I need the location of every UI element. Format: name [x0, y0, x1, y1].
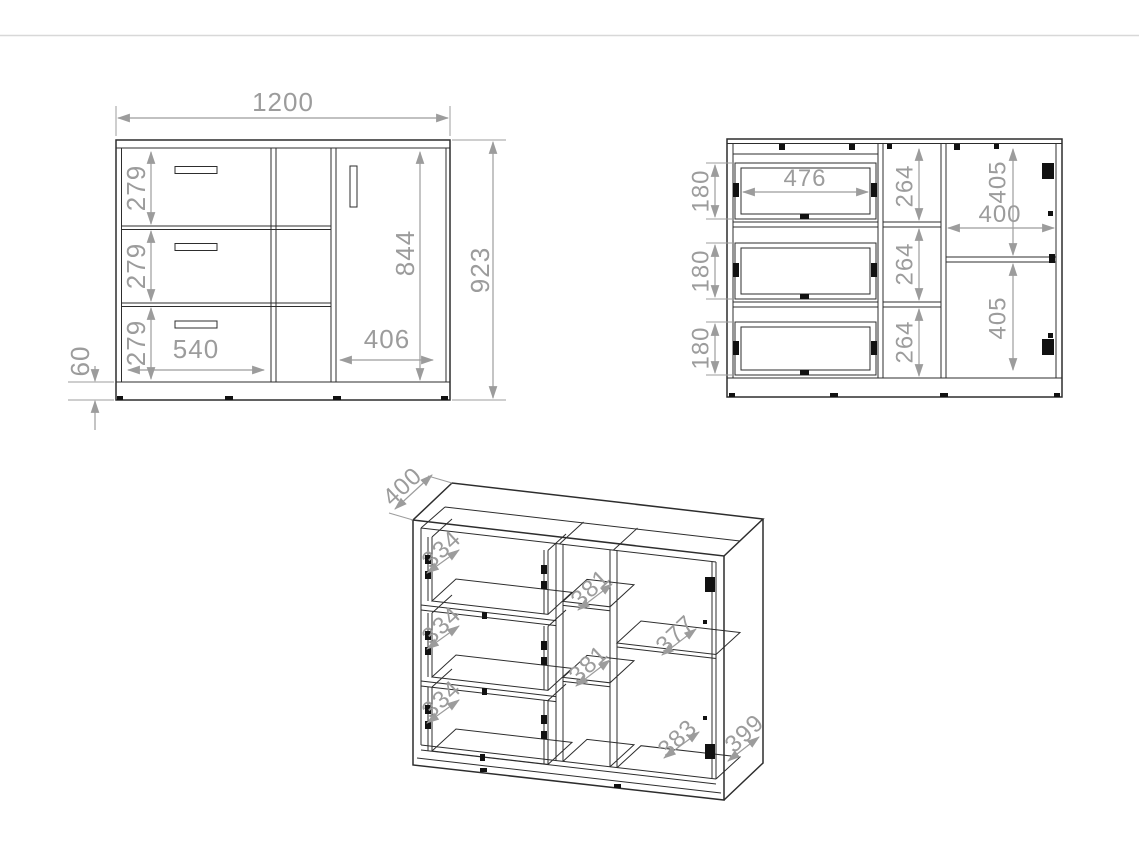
- dim-label-drawer-depth-3: 334: [417, 675, 467, 724]
- drawer-handle: [175, 244, 217, 251]
- door-handle: [350, 166, 357, 207]
- dim-label-top-depth: 400: [378, 462, 428, 511]
- cam-lock-marks: [779, 144, 999, 150]
- drawer-handle: [175, 321, 217, 328]
- dim-label-right-shelf-height-1: 405: [984, 160, 1011, 203]
- dim-label-overall-width: 1200: [252, 87, 314, 117]
- dim-label-shelf-height-3: 264: [891, 320, 918, 363]
- dim-label-bottom-depth: 383: [653, 714, 703, 763]
- dim-label-shelf-height-2: 264: [891, 242, 918, 285]
- dim-label-box-height-3: 180: [687, 326, 714, 369]
- drawer-division-lines: [122, 226, 332, 307]
- dim-label-box-height-2: 180: [687, 249, 714, 292]
- iso-cabinet-outline: [413, 483, 763, 800]
- dim-label-plinth-height: 60: [65, 346, 95, 377]
- dim-label-door-width: 406: [364, 324, 410, 354]
- drawer-box: [733, 243, 877, 299]
- dim-label-overall-height: 923: [465, 247, 495, 293]
- front-view: 1200 923 844 279 279 279 540 406: [65, 87, 506, 430]
- drawer-handle: [175, 167, 217, 174]
- dim-label-right-shelf-height-2: 405: [984, 296, 1011, 339]
- open-front-view: 180 180 180 476 264 264 264 400 405 405: [687, 139, 1062, 397]
- dim-label-drawer-height-3: 279: [121, 320, 151, 366]
- front-dimensions: 1200 923 844 279 279 279 540 406: [65, 87, 506, 430]
- dimension-drawing: 1200 923 844 279 279 279 540 406: [0, 0, 1139, 854]
- dim-label-drawer-inner-width: 476: [783, 165, 826, 192]
- dim-label-middle-shelf-depth-1: 381: [566, 564, 616, 613]
- furniture-dimension-sheet: 1200 923 844 279 279 279 540 406: [0, 0, 1139, 854]
- drawer-box: [733, 322, 877, 375]
- dim-label-drawer-depth-2: 334: [417, 601, 467, 650]
- iso-dimensions: 400 334 334 334 381 381 377 383 399: [378, 462, 770, 763]
- dim-label-right-section-width: 400: [978, 201, 1021, 228]
- dim-label-shelf-height-1: 264: [891, 164, 918, 207]
- interior-frame-lines: [417, 507, 740, 793]
- dim-label-drawer-height-2: 279: [121, 243, 151, 289]
- extension-lines: [68, 382, 114, 400]
- dim-label-side-depth: 399: [720, 709, 770, 758]
- front-frame: [413, 520, 724, 800]
- dim-label-drawer-height-1: 279: [121, 165, 151, 211]
- right-face: [724, 519, 763, 800]
- dim-label-box-height-1: 180: [687, 169, 714, 212]
- hinge-icon: [1042, 163, 1055, 355]
- perspective-view: 400 334 334 334 381 381 377 383 399: [378, 462, 770, 800]
- dim-label-door-height: 844: [390, 230, 420, 276]
- dim-label-drawer-width: 540: [173, 334, 219, 364]
